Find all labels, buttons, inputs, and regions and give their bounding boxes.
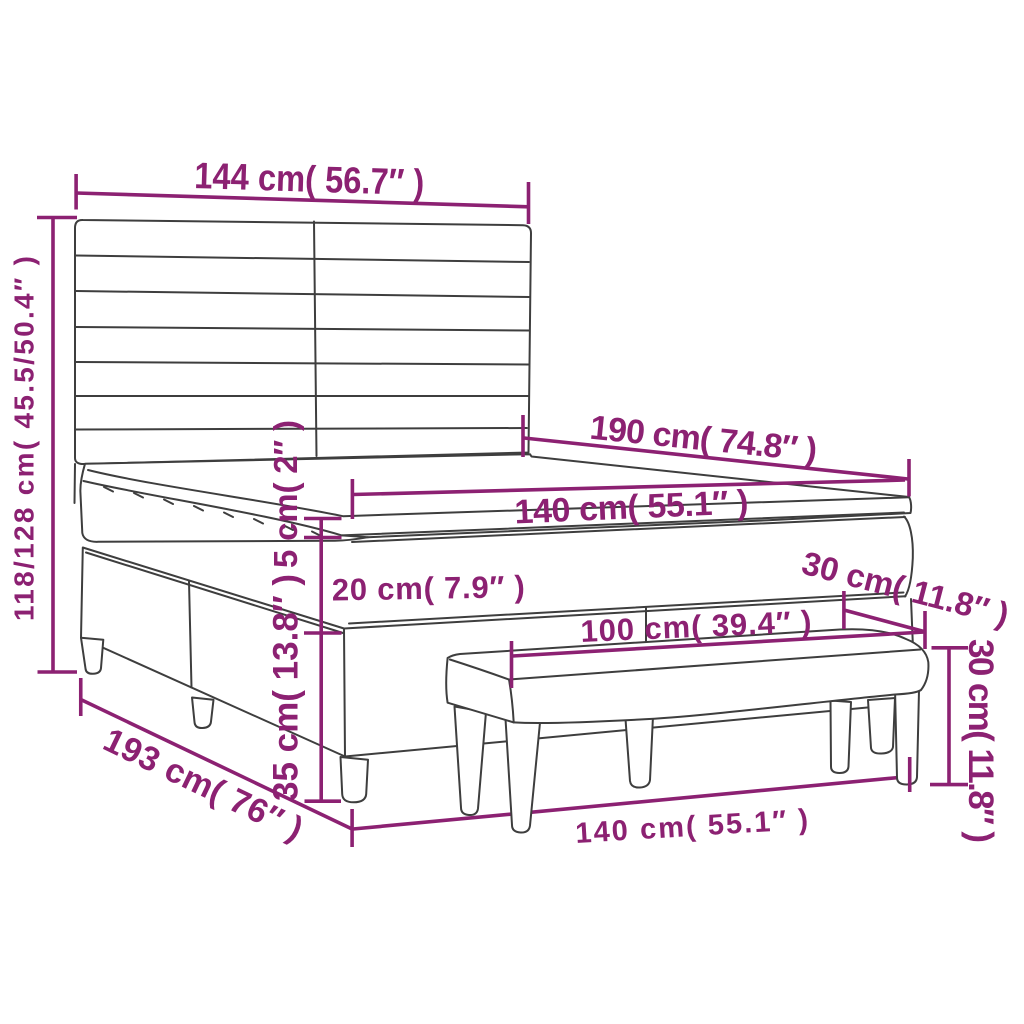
svg-text:30 cm( 11.8″ ): 30 cm( 11.8″ ) xyxy=(961,639,1000,843)
svg-text:20 cm( 7.9″ ): 20 cm( 7.9″ ) xyxy=(332,569,526,607)
svg-text:144 cm( 56.7″ ): 144 cm( 56.7″ ) xyxy=(194,155,425,203)
svg-text:5 cm( 2″ ): 5 cm( 2″ ) xyxy=(267,420,304,568)
svg-text:35 cm( 13.8″ ): 35 cm( 13.8″ ) xyxy=(267,574,306,801)
